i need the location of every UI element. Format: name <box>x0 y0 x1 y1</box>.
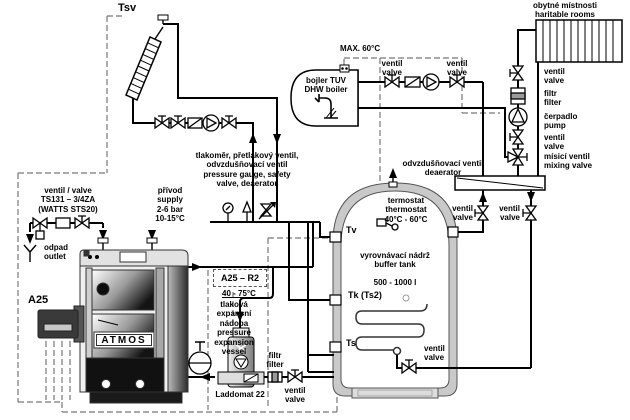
dhw-boiler-label: bojler TUVDHW boiler <box>296 76 356 95</box>
deaerator-label: odvzdušňovací ventildeaerator <box>388 159 498 178</box>
rooms-label: obytné místnostiharitable rooms <box>505 1 625 20</box>
laddomat-filter-label: filtrfilter <box>255 351 295 370</box>
three-way-valve-icon <box>33 218 47 239</box>
radiator-valve2-label: ventilvalve <box>544 133 565 152</box>
filter-icon <box>511 88 525 104</box>
pump-icon <box>423 74 439 90</box>
dhw-boiler <box>291 65 358 126</box>
manifold-right-valve-label: ventilvalve <box>490 204 520 223</box>
sensor-ts-label: Ts <box>346 338 356 349</box>
supply-label: přívodsupply 2-6 bar10-15°C <box>146 186 194 224</box>
tank-valve-label: ventilvalve <box>424 344 445 363</box>
heating-system-diagram: Tsv obytné místnostiharitable rooms vent… <box>0 0 630 420</box>
laddomat-valve-label: ventilvalve <box>275 386 315 405</box>
tsv-sensor-label: Tsv <box>118 2 136 15</box>
distribution-manifold <box>455 176 545 190</box>
radiator-pump-label: čerpadlopump <box>544 112 577 131</box>
pump-icon <box>203 115 219 131</box>
reducer-icon <box>56 218 70 228</box>
max-temp-label: MAX. 60°C <box>340 44 380 53</box>
buffer-tank-label: vyrovnávací nádržbuffer tank <box>348 251 442 270</box>
safety-valve-icon <box>259 202 276 219</box>
valve-icon <box>222 116 236 128</box>
radiator <box>536 20 622 62</box>
mixing-valve-label: mísicí ventilmixing valve <box>544 152 592 171</box>
fill-valve-label: ventil / valveTS131 – 3/4ZA(WATTS STS20) <box>22 186 114 214</box>
atmos-boiler <box>80 250 188 403</box>
solar-collector <box>126 27 163 100</box>
laddomat-label: Laddomat 22 <box>208 390 272 399</box>
manifold-left-valve-label: ventilvalve <box>443 204 473 223</box>
radiator-valve1-label: ventilvalve <box>544 67 565 86</box>
valve-icon <box>171 116 185 128</box>
safety-group-label: tlakoměr, přetlakový ventil,odvzdušňovac… <box>180 151 314 189</box>
pressure-gauge-icon <box>223 203 233 222</box>
boiler-temp-range-label: 40 - 75°C <box>211 289 267 298</box>
mixing-valve-icon <box>508 149 527 165</box>
valve-icon <box>288 370 302 382</box>
check-valve-icon <box>405 77 420 87</box>
valve-icon <box>510 130 523 144</box>
pump-icon <box>509 108 527 126</box>
expansion-vessel-label: tlakováexpansní nádobapressure expansion… <box>206 300 262 357</box>
valve-icon <box>155 116 169 128</box>
sensor-tk-label: Tk (Ts2) <box>348 290 382 301</box>
radiator-filter-label: filtrfilter <box>544 89 561 108</box>
deaerator-icon <box>243 202 251 222</box>
valve-icon <box>523 206 536 220</box>
dhw-valve1-label: ventilvalve <box>374 59 410 78</box>
boiler-brand-label: ATMOS <box>96 335 152 347</box>
circuit-tag: A25 – R2 <box>213 269 267 287</box>
check-valve-icon <box>188 118 202 128</box>
filter-icon <box>268 372 282 382</box>
dhw-valve2-label: ventilvalve <box>439 59 475 78</box>
valve-icon <box>510 66 523 80</box>
valve-icon <box>475 206 488 220</box>
a25-burner <box>38 306 84 342</box>
thermostat-label: termostatthermostat40°C - 60°C <box>374 196 438 224</box>
boiler-model-label: A25 <box>28 294 48 307</box>
valve-icon <box>75 216 89 228</box>
tank-volume-label: 500 - 1000 l <box>348 278 442 287</box>
sensor-tv-label: Tv <box>346 225 357 236</box>
drain-label: odpadoutlet <box>44 243 68 262</box>
